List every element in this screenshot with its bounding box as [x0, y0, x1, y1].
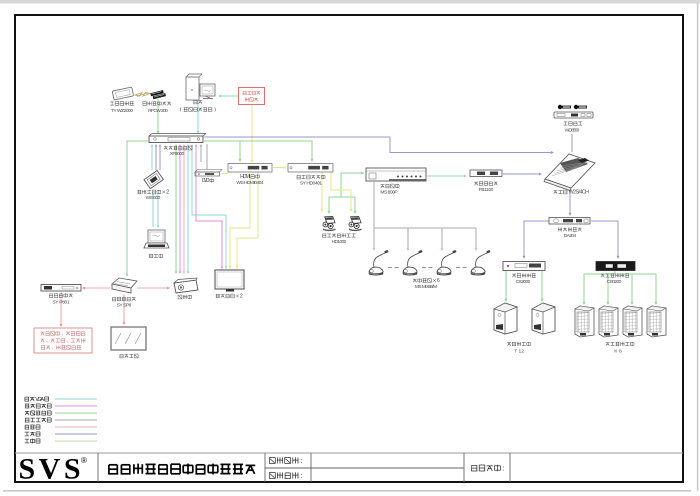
svg-text:MS M06B/M: MS M06B/M	[415, 284, 437, 290]
svg-text:MS 800P: MS 800P	[380, 190, 397, 196]
svg-text:SY P801: SY P801	[52, 300, 69, 306]
svg-text:WS 600: WS 600	[146, 195, 161, 201]
svg-text::: :	[301, 456, 303, 465]
svg-text:CS2000: CS2000	[516, 279, 531, 285]
svg-text:WD8500: WD8500	[565, 128, 580, 134]
svg-text::: :	[503, 464, 505, 473]
svg-text:VGA: VGA	[35, 397, 44, 403]
svg-text:CS0200: CS0200	[607, 279, 622, 285]
svg-text::: :	[301, 471, 303, 480]
svg-text:HDMI: HDMI	[240, 174, 250, 180]
svg-text:®: ®	[81, 456, 87, 465]
svg-text:2: 2	[166, 190, 169, 196]
svg-text:FB1100: FB1100	[479, 187, 494, 193]
svg-text:SVS: SVS	[19, 453, 81, 486]
svg-text:TY WZ2000: TY WZ2000	[111, 108, 133, 114]
svg-text:SY HD0401: SY HD0401	[300, 181, 322, 187]
svg-text:DA204: DA204	[564, 233, 577, 239]
svg-text:HD1000: HD1000	[332, 239, 347, 245]
svg-text:2: 2	[240, 294, 243, 300]
svg-text:T 12: T 12	[514, 349, 524, 355]
svg-text:WS HDMI0404: WS HDMI0404	[236, 180, 263, 186]
svg-text:W2S/4CH: W2S/4CH	[568, 190, 589, 196]
svg-text:SY SP8: SY SP8	[117, 303, 132, 309]
svg-text:DVD: DVD	[202, 178, 210, 184]
svg-text:RFCW 200: RFCW 200	[148, 108, 168, 114]
svg-text:6: 6	[437, 278, 440, 284]
svg-text:XF9000: XF9000	[170, 151, 185, 157]
svg-text:K 8: K 8	[614, 349, 622, 355]
